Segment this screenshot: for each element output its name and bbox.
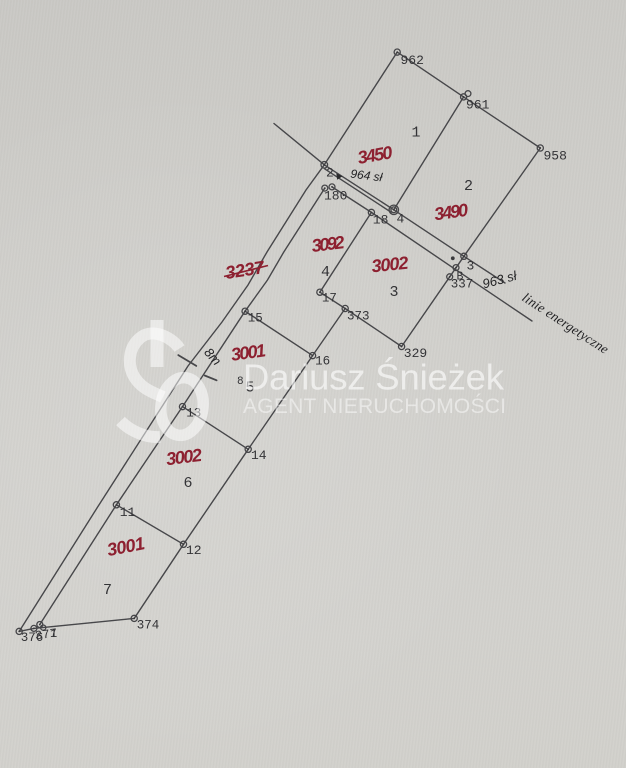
svg-text:4: 4 [321, 264, 330, 281]
svg-text:3490: 3490 [433, 200, 469, 225]
svg-text:373: 373 [347, 310, 370, 324]
svg-text:3: 3 [390, 284, 399, 301]
svg-text:180: 180 [324, 189, 347, 204]
svg-text:3450: 3450 [356, 142, 394, 168]
svg-text:17: 17 [322, 292, 337, 306]
svg-text:6: 6 [184, 475, 193, 492]
svg-text:15: 15 [248, 312, 263, 326]
svg-text:2: 2 [326, 166, 334, 181]
svg-text:linie energetyczne: linie energetyczne [519, 290, 611, 357]
svg-text:2: 2 [464, 178, 473, 195]
svg-text:958: 958 [544, 149, 567, 164]
svg-text:3002: 3002 [165, 445, 203, 469]
svg-text:374: 374 [137, 619, 160, 633]
svg-text:18: 18 [373, 213, 389, 228]
svg-text:964 sł: 964 sł [350, 167, 384, 185]
svg-text:Dariusz Śnieżek: Dariusz Śnieżek [243, 356, 505, 398]
svg-text:1: 1 [412, 125, 421, 142]
svg-text:4: 4 [397, 212, 405, 227]
svg-text:961: 961 [466, 98, 490, 113]
svg-text:1: 1 [50, 627, 57, 641]
svg-text:3092: 3092 [310, 232, 345, 256]
svg-text:3002: 3002 [370, 253, 409, 277]
svg-text:962: 962 [401, 53, 424, 68]
svg-text:337: 337 [451, 278, 474, 292]
svg-text:12: 12 [186, 543, 202, 558]
svg-text:3: 3 [467, 259, 475, 274]
svg-text:7: 7 [103, 582, 112, 599]
svg-text:3001: 3001 [105, 533, 146, 560]
svg-text:3237: 3237 [224, 257, 267, 283]
svg-text:14: 14 [251, 448, 267, 463]
svg-text:11: 11 [120, 505, 136, 520]
svg-text:AGENT NIERUCHOMOŚCI: AGENT NIERUCHOMOŚCI [243, 394, 506, 418]
